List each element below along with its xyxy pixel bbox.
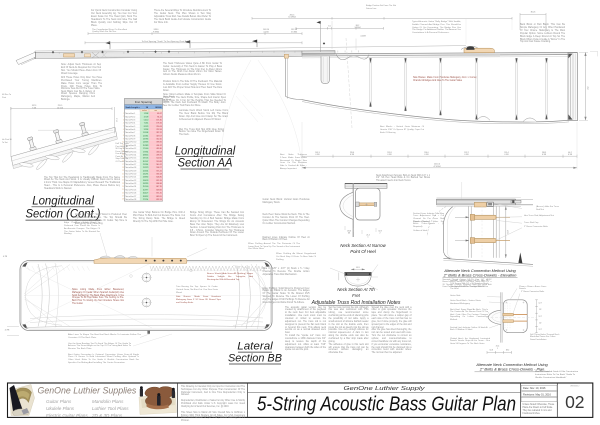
svg-text:4 7/8: 4 7/8 [3, 256, 7, 258]
svg-text:2: 2 [380, 233, 381, 235]
svg-text:6 3/8: 6 3/8 [425, 154, 429, 156]
svg-text:Neck Section At Narrow: Neck Section At Narrow [340, 243, 386, 248]
svg-text:27.254: 27.254 [143, 199, 148, 201]
svg-text:Nut to Fret 28: Nut to Fret 28 [126, 198, 137, 201]
svg-text:1/2: 1/2 [539, 309, 541, 311]
svg-text:Nut to Fret 17: Nut to Fret 17 [126, 163, 137, 166]
svg-text:Longitudinal: Longitudinal [175, 144, 236, 157]
svg-text:10 29/64: 10 29/64 [288, 17, 295, 19]
svg-text:6 3/8: 6 3/8 [316, 154, 320, 156]
svg-text:4: 4 [123, 122, 124, 124]
svg-text:1: 1 [123, 113, 124, 115]
svg-text:9: 9 [123, 138, 124, 140]
svg-text:50.8: 50.8 [490, 350, 493, 352]
svg-text:4 1/16: 4 1/16 [263, 32, 268, 34]
svg-text:Nut to Fret 18: Nut to Fret 18 [126, 166, 137, 169]
svg-text:6 3/8: 6 3/8 [465, 154, 469, 156]
svg-text:Nut to Fret 24: Nut to Fret 24 [126, 185, 137, 188]
svg-text:Nut to Fret 22: Nut to Fret 22 [126, 179, 137, 182]
svg-text:Nut to Fret 7: Nut to Fret 7 [126, 131, 136, 134]
svg-text:9 49/64: 9 49/64 [153, 32, 159, 34]
svg-text:Date: Nov. 10, 2016: Date: Nov. 10, 2016 [523, 386, 546, 390]
svg-text:5 13/64: 5 13/64 [291, 32, 297, 34]
svg-text:6 3/8: 6 3/8 [350, 154, 354, 156]
svg-text:50.8: 50.8 [508, 230, 510, 234]
svg-text:Longitudinal: Longitudinal [32, 193, 94, 207]
svg-text:57.2: 57.2 [117, 118, 119, 122]
svg-text:Nut to Fret 8: Nut to Fret 8 [126, 134, 136, 137]
svg-text:02: 02 [565, 392, 584, 412]
svg-text:252: 252 [587, 86, 589, 89]
svg-text:27: 27 [122, 196, 124, 198]
svg-text:Fret: Fret [352, 293, 360, 298]
svg-text:Scale Length =: Scale Length = [126, 106, 141, 109]
svg-text:GenOne Luthier Supply: GenOne Luthier Supply [344, 386, 427, 392]
svg-text:5.5: 5.5 [328, 25, 331, 27]
svg-text:1: 1 [497, 348, 498, 350]
svg-text:2: 2 [123, 116, 124, 118]
svg-text:25: 25 [122, 189, 124, 191]
svg-text:2 7/8: 2 7/8 [5, 330, 10, 332]
svg-text:Lateral: Lateral [237, 341, 273, 353]
svg-text:38.2: 38.2 [506, 350, 509, 352]
svg-text:7 3/8: 7 3/8 [32, 107, 36, 109]
svg-text:Nut to Fret 4: Nut to Fret 4 [126, 122, 136, 125]
svg-text:To Fret Spacing "Scale" To Fre: To Fret Spacing "Scale" To Fret Spacing … [142, 40, 191, 43]
svg-text:3: 3 [123, 119, 124, 121]
svg-text:Nut to Fret 9: Nut to Fret 9 [126, 138, 136, 141]
svg-text:19: 19 [122, 170, 124, 172]
svg-text:Nut to Fret 25: Nut to Fret 25 [126, 188, 137, 191]
svg-text:23: 23 [122, 183, 124, 185]
svg-text:47 41/64: 47 41/64 [434, 166, 441, 168]
svg-text:Section AA: Section AA [178, 157, 233, 170]
svg-text:Neck Section At 7th: Neck Section At 7th [337, 287, 375, 292]
svg-text:Nut to Fret 5: Nut to Fret 5 [126, 125, 136, 128]
svg-text:6 3/8: 6 3/8 [505, 154, 509, 156]
svg-text:12.7: 12.7 [539, 329, 542, 331]
svg-text:3 25/64: 3 25/64 [355, 27, 361, 29]
svg-text:6 3/8: 6 3/8 [542, 154, 546, 156]
svg-text:8: 8 [123, 135, 124, 137]
svg-text:Section BB: Section BB [228, 353, 282, 365]
svg-text:5-String Acoustic Bass Guitar: 5-String Acoustic Bass Guitar Plan [257, 394, 516, 416]
svg-text:1/2: 1/2 [539, 323, 541, 325]
svg-text:7: 7 [123, 132, 124, 134]
svg-text:Nut to Fret 2: Nut to Fret 2 [126, 115, 136, 118]
svg-text:5: 5 [123, 126, 124, 128]
svg-text:18: 18 [122, 167, 124, 169]
svg-text:1: 1 [368, 237, 369, 239]
svg-text:Nut to Fret 23: Nut to Fret 23 [126, 182, 137, 185]
svg-text:Revisions: May 01, 2016: Revisions: May 01, 2016 [523, 392, 551, 396]
svg-text:Nut to Fret 26: Nut to Fret 26 [126, 192, 137, 195]
svg-text:26: 26 [122, 192, 124, 194]
svg-text:Fret Spacing: Fret Spacing [135, 100, 153, 104]
svg-text:12.7: 12.7 [539, 302, 542, 304]
svg-text:Nut to Fret 1: Nut to Fret 1 [126, 112, 136, 115]
svg-text:28: 28 [122, 199, 124, 201]
svg-text:Nut to Fret 19: Nut to Fret 19 [126, 169, 137, 172]
svg-text:12.7: 12.7 [539, 316, 542, 318]
svg-text:10 1/16: 10 1/16 [57, 107, 63, 109]
svg-text:863.60: 863.60 [155, 107, 162, 109]
svg-text:20: 20 [122, 173, 124, 175]
svg-text:22: 22 [122, 180, 124, 182]
svg-text:VERSION 2: VERSION 2 [570, 386, 579, 388]
svg-text:17: 17 [122, 164, 124, 166]
svg-text:Point Of Heel: Point Of Heel [350, 249, 377, 254]
svg-text:63.5: 63.5 [356, 267, 360, 269]
svg-text:Nut to Fret 3: Nut to Fret 3 [126, 118, 136, 121]
svg-text:6: 6 [123, 129, 124, 131]
svg-text:36.25: 36.25 [531, 12, 536, 14]
svg-text:692.24: 692.24 [156, 199, 161, 201]
svg-text:6 3/8: 6 3/8 [388, 154, 392, 156]
svg-text:Nut to Fret 6: Nut to Fret 6 [126, 128, 136, 131]
svg-text:Nut to Fret 27: Nut to Fret 27 [126, 195, 137, 198]
svg-text:Nut to Fret 20: Nut to Fret 20 [126, 173, 137, 176]
svg-text:21: 21 [122, 176, 124, 178]
svg-text:24: 24 [122, 186, 124, 188]
svg-text:Nut to Fret 21: Nut to Fret 21 [126, 176, 137, 179]
svg-text:2" Bolts & Brass Cross-Dowels: 2" Bolts & Brass Cross-Dowels - Elevatio… [443, 272, 517, 277]
svg-text:6 3/8: 6 3/8 [568, 154, 572, 156]
svg-text:3/4: 3/4 [348, 233, 350, 235]
svg-text:GenOne Luthier Supplies: GenOne Luthier Supplies [38, 386, 137, 396]
svg-text:4.25/8: 4.25/8 [360, 36, 365, 38]
